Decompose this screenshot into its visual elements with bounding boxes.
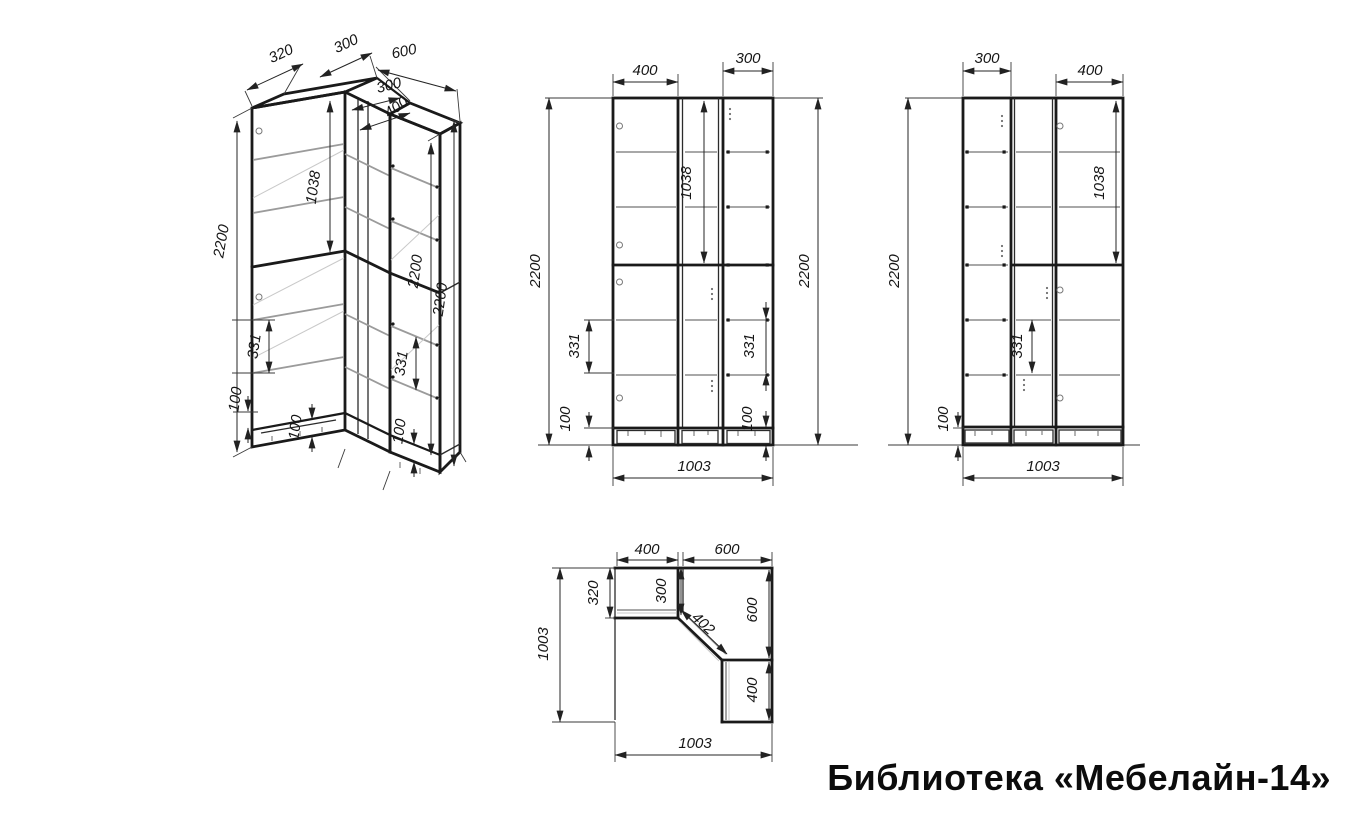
iso-dim-2200-left: 2200 bbox=[210, 223, 233, 260]
plan-dim-400-right: 400 bbox=[744, 677, 761, 703]
side-dim-331: 331 bbox=[1009, 333, 1026, 358]
technical-drawing-page: 2200 320 300 600 300 400 1038 331 100 1 bbox=[0, 0, 1353, 815]
front-dim-400: 400 bbox=[632, 62, 658, 79]
front-dim-331-right: 331 bbox=[741, 333, 758, 358]
side-elevation-view: 300 400 2200 100 331 1038 1003 bbox=[886, 50, 1140, 486]
side-dim-100: 100 bbox=[935, 406, 952, 432]
side-elevation-dimensions: 300 400 2200 100 331 1038 1003 bbox=[886, 50, 1123, 486]
iso-dim-331-right: 331 bbox=[391, 350, 411, 377]
iso-dim-100-mid: 100 bbox=[285, 413, 305, 441]
side-dim-300: 300 bbox=[974, 50, 1000, 67]
side-dim-400: 400 bbox=[1077, 62, 1103, 79]
drawing-title: Библиотека «Мебелайн-14» bbox=[827, 757, 1331, 799]
side-dim-1038: 1038 bbox=[1091, 166, 1108, 200]
iso-dim-600: 600 bbox=[390, 41, 419, 63]
plan-dim-1003-left: 1003 bbox=[535, 627, 552, 661]
iso-dim-300-top: 300 bbox=[331, 31, 361, 57]
plan-dim-400-top: 400 bbox=[634, 541, 660, 558]
iso-dim-100-left: 100 bbox=[225, 385, 245, 413]
front-dim-1038: 1038 bbox=[678, 166, 695, 200]
iso-dim-320: 320 bbox=[266, 41, 296, 67]
front-elevation-view: 400 300 2200 331 100 1038 331 100 2200 1… bbox=[527, 50, 858, 486]
plan-dim-320: 320 bbox=[585, 580, 602, 606]
iso-dim-2200-inner: 2200 bbox=[405, 253, 427, 290]
front-dim-100-left: 100 bbox=[557, 406, 574, 432]
plan-dim-600-top: 600 bbox=[714, 541, 740, 558]
plan-view: 400 600 320 300 402 600 400 1003 1003 bbox=[535, 541, 772, 762]
iso-dim-400-inner: 400 bbox=[381, 93, 412, 122]
front-dim-100-right: 100 bbox=[739, 406, 756, 432]
front-dim-1003: 1003 bbox=[677, 458, 711, 475]
plan-dim-300: 300 bbox=[653, 578, 670, 604]
isometric-dimensions: 2200 320 300 600 300 400 1038 331 100 1 bbox=[210, 31, 466, 477]
plan-dim-600-right: 600 bbox=[744, 597, 761, 623]
front-dim-2200-left: 2200 bbox=[527, 254, 544, 289]
side-elevation-linework bbox=[888, 98, 1140, 445]
plan-dim-1003-bottom: 1003 bbox=[678, 735, 712, 752]
plan-dimensions: 400 600 320 300 402 600 400 1003 1003 bbox=[535, 541, 772, 762]
front-dim-331-left: 331 bbox=[566, 333, 583, 358]
iso-dim-331-left: 331 bbox=[244, 333, 264, 360]
iso-dim-2200-outer: 2200 bbox=[430, 281, 452, 318]
iso-dim-100-right: 100 bbox=[389, 417, 409, 445]
isometric-linework bbox=[252, 78, 460, 490]
drawing-canvas: 2200 320 300 600 300 400 1038 331 100 1 bbox=[0, 0, 1353, 815]
side-dim-2200: 2200 bbox=[886, 254, 903, 289]
iso-dim-1038: 1038 bbox=[303, 169, 325, 205]
isometric-view: 2200 320 300 600 300 400 1038 331 100 1 bbox=[210, 31, 466, 490]
front-dim-2200-right: 2200 bbox=[796, 254, 813, 289]
front-dim-300: 300 bbox=[735, 50, 761, 67]
side-dim-1003: 1003 bbox=[1026, 458, 1060, 475]
